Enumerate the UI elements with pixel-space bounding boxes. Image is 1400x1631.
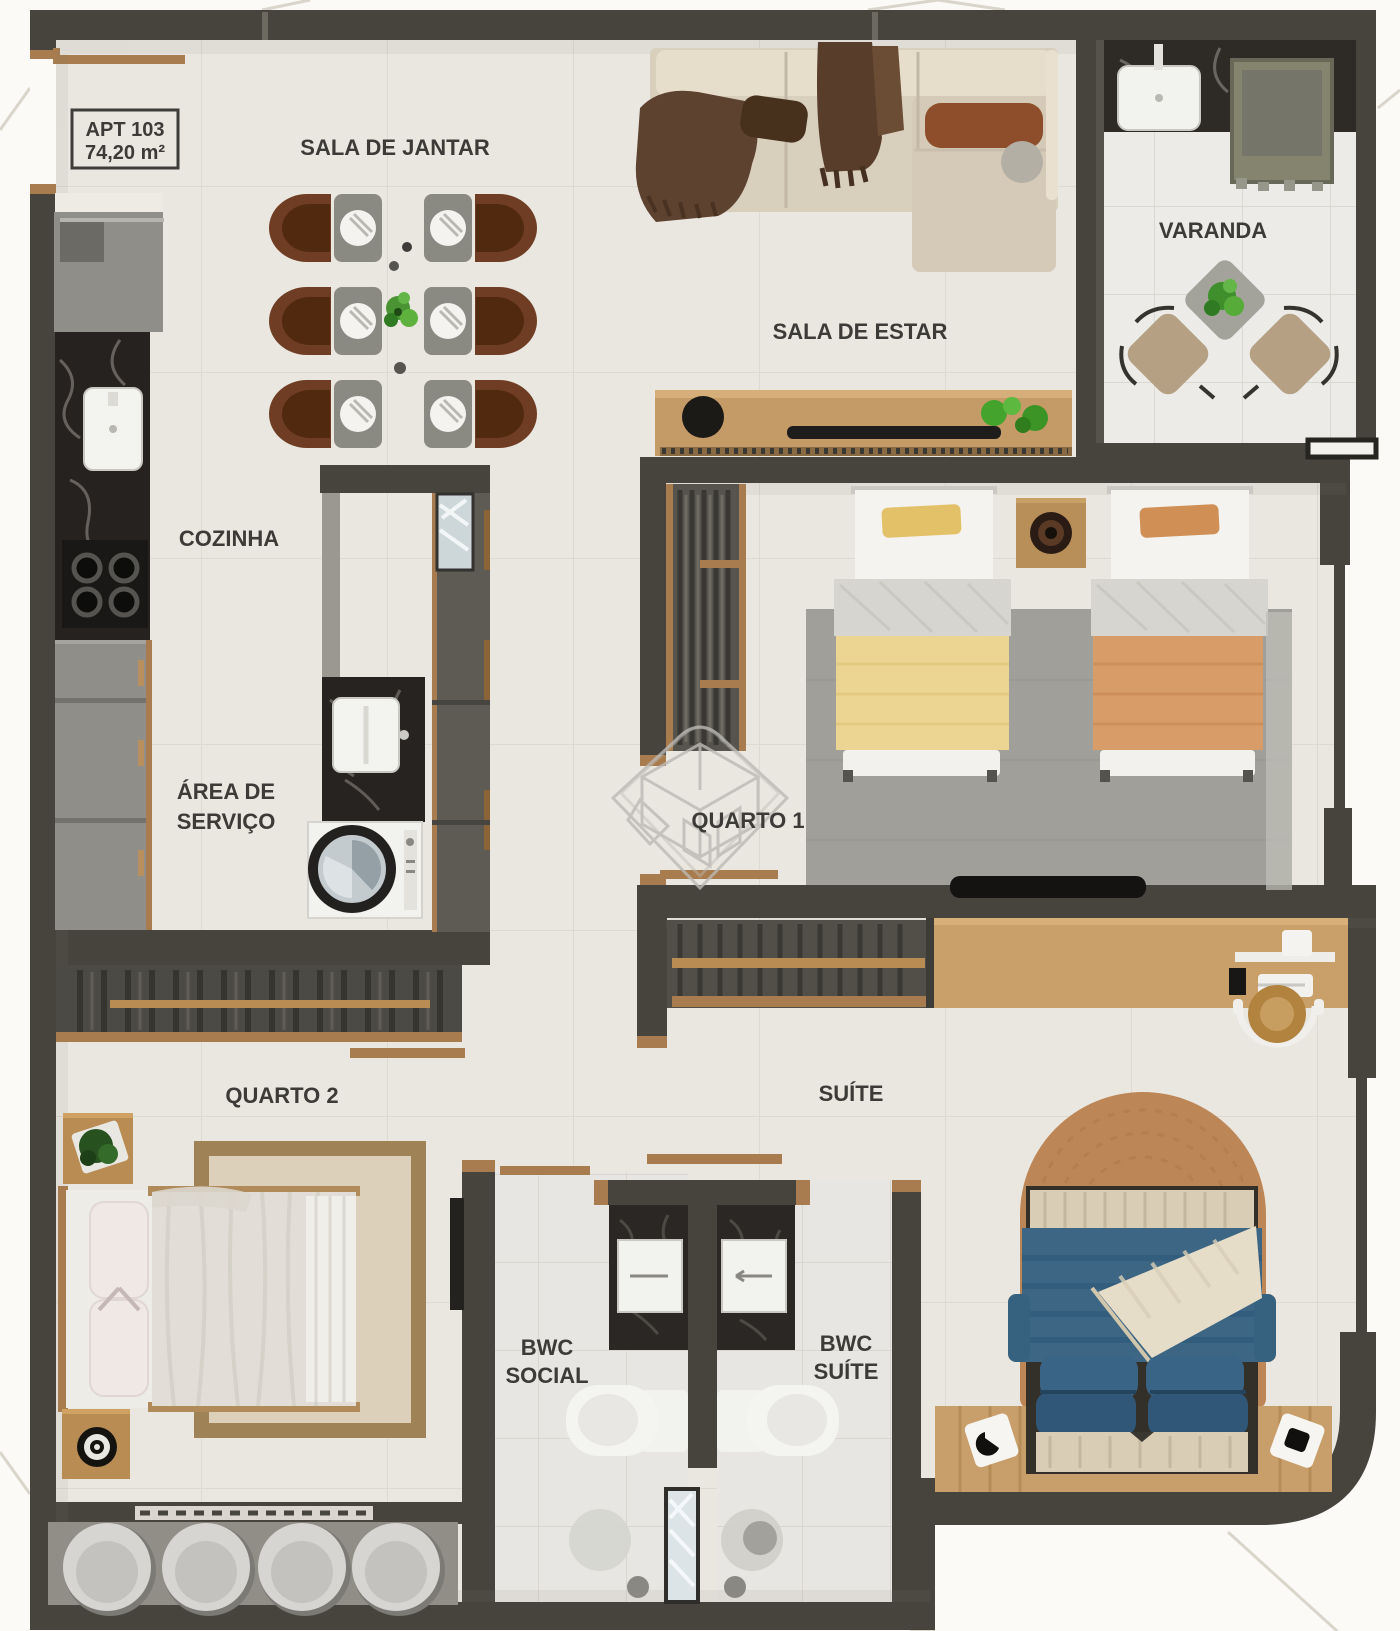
svg-text:SUÍTE: SUÍTE [814,1359,879,1384]
svg-text:BWC: BWC [820,1331,873,1356]
svg-text:APT 103: APT 103 [86,119,165,141]
svg-text:SERVIÇO: SERVIÇO [177,809,276,834]
svg-text:ÁREA DE: ÁREA DE [177,779,275,804]
svg-text:SALA DE ESTAR: SALA DE ESTAR [773,319,948,344]
svg-text:VARANDA: VARANDA [1159,218,1267,243]
svg-text:SUÍTE: SUÍTE [819,1081,884,1106]
svg-text:COZINHA: COZINHA [179,526,279,551]
svg-text:QUARTO 2: QUARTO 2 [225,1083,338,1108]
svg-text:BWC: BWC [521,1335,574,1360]
svg-text:SOCIAL: SOCIAL [505,1363,588,1388]
svg-text:QUARTO 1: QUARTO 1 [691,808,804,833]
svg-text:SALA DE JANTAR: SALA DE JANTAR [300,135,490,160]
svg-text:74,20 m²: 74,20 m² [85,142,165,164]
